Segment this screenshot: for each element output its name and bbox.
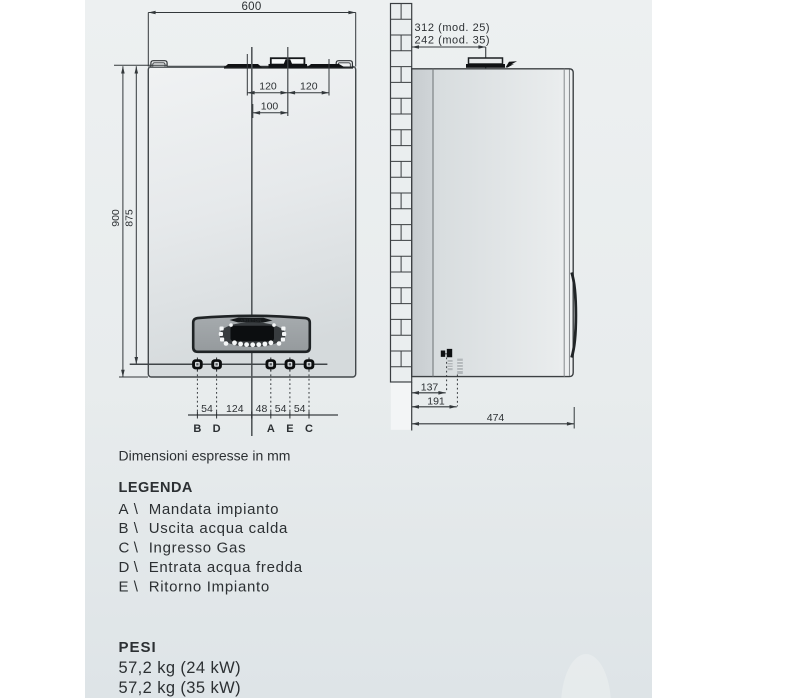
svg-text:D: D [213, 423, 221, 435]
svg-text:E: E [286, 423, 293, 435]
svg-text:875: 875 [124, 209, 136, 227]
svg-text:57,2 kg (24 kW): 57,2 kg (24 kW) [119, 659, 241, 677]
svg-text:C\Ingresso Gas: C\Ingresso Gas [119, 540, 247, 557]
svg-text:54: 54 [275, 403, 287, 415]
svg-text:C: C [305, 423, 313, 435]
svg-text:54: 54 [294, 403, 306, 415]
svg-text:LEGENDA: LEGENDA [119, 480, 193, 496]
svg-text:120: 120 [300, 81, 318, 93]
svg-text:242 (mod. 35): 242 (mod. 35) [415, 35, 491, 47]
svg-text:900: 900 [110, 209, 122, 227]
svg-text:120: 120 [259, 81, 277, 93]
svg-text:312 (mod. 25): 312 (mod. 25) [415, 22, 491, 34]
svg-text:191: 191 [427, 395, 445, 407]
svg-text:54: 54 [201, 403, 213, 415]
svg-text:ARISTON: ARISTON [240, 318, 262, 323]
svg-text:137: 137 [421, 381, 439, 393]
svg-text:600: 600 [241, 1, 261, 13]
svg-text:PESI: PESI [119, 639, 157, 656]
svg-text:124: 124 [226, 403, 244, 415]
svg-text:B: B [193, 423, 201, 435]
svg-text:48: 48 [256, 403, 268, 415]
svg-text:57,2 kg (35 kW): 57,2 kg (35 kW) [119, 679, 241, 697]
svg-text:A: A [267, 423, 275, 435]
svg-text:Dimensioni espresse in mm: Dimensioni espresse in mm [119, 448, 291, 464]
svg-text:474: 474 [487, 412, 505, 424]
svg-text:100: 100 [261, 101, 279, 113]
